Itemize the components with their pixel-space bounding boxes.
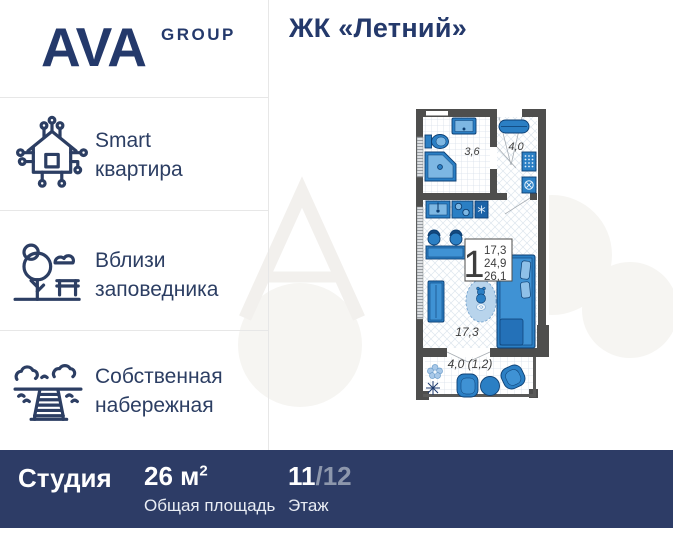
balcony-label: 4,0 (1,2) bbox=[448, 357, 493, 371]
total-area: 26 м2 bbox=[144, 461, 208, 492]
balcony-glazing bbox=[423, 394, 536, 397]
logo-main-text: AVA bbox=[41, 20, 146, 75]
balcony-side-glazing bbox=[533, 357, 536, 397]
shaft-hatch bbox=[417, 207, 423, 319]
divider bbox=[0, 330, 269, 331]
plan-info-box: 1 17,3 24,9 26,1 bbox=[463, 239, 512, 286]
feature-label: Собственная набережная bbox=[95, 362, 223, 420]
floor-plan: 1 17,3 24,9 26,1 3,6 4,0 17,3 4,0 (1,2) bbox=[395, 95, 575, 415]
logo-sub-text: GROUP bbox=[161, 25, 236, 45]
shaft-hatch bbox=[417, 137, 423, 177]
unit-type: Студия bbox=[18, 463, 112, 494]
living-room-label: 17,3 bbox=[455, 325, 479, 339]
total-area-label: Общая площадь bbox=[144, 496, 275, 516]
bathroom-label: 3,6 bbox=[464, 146, 480, 158]
desk bbox=[428, 281, 444, 322]
divider bbox=[0, 210, 269, 211]
wall-niche bbox=[426, 111, 448, 116]
nature-reserve-icon bbox=[8, 230, 88, 310]
smart-home-icon bbox=[12, 110, 92, 190]
hallway-label: 4,0 bbox=[508, 141, 524, 153]
rug-and-toy bbox=[466, 280, 496, 322]
feature-label: Вблизи заповедника bbox=[95, 246, 218, 304]
floor-label: Этаж bbox=[288, 496, 329, 516]
embankment-icon bbox=[8, 350, 88, 430]
living-area-value: 17,3 bbox=[484, 245, 506, 257]
feature-label: Smart квартира bbox=[95, 126, 183, 184]
ava-group-logo: AVA GROUP bbox=[33, 8, 243, 92]
total-area-value: 26,1 bbox=[484, 271, 506, 283]
summary-bar: Студия 26 м2 Общая площадь 11/12 Этаж bbox=[0, 450, 673, 528]
room-count: 1 bbox=[463, 244, 484, 286]
divider bbox=[0, 97, 269, 98]
kitchen-fixtures bbox=[426, 201, 488, 218]
apartment-area-value: 24,9 bbox=[484, 258, 506, 270]
divider-vertical bbox=[268, 0, 269, 450]
page-title: ЖК «Летний» bbox=[289, 13, 467, 44]
plant bbox=[426, 381, 440, 395]
floor-value: 11/12 bbox=[288, 461, 352, 492]
